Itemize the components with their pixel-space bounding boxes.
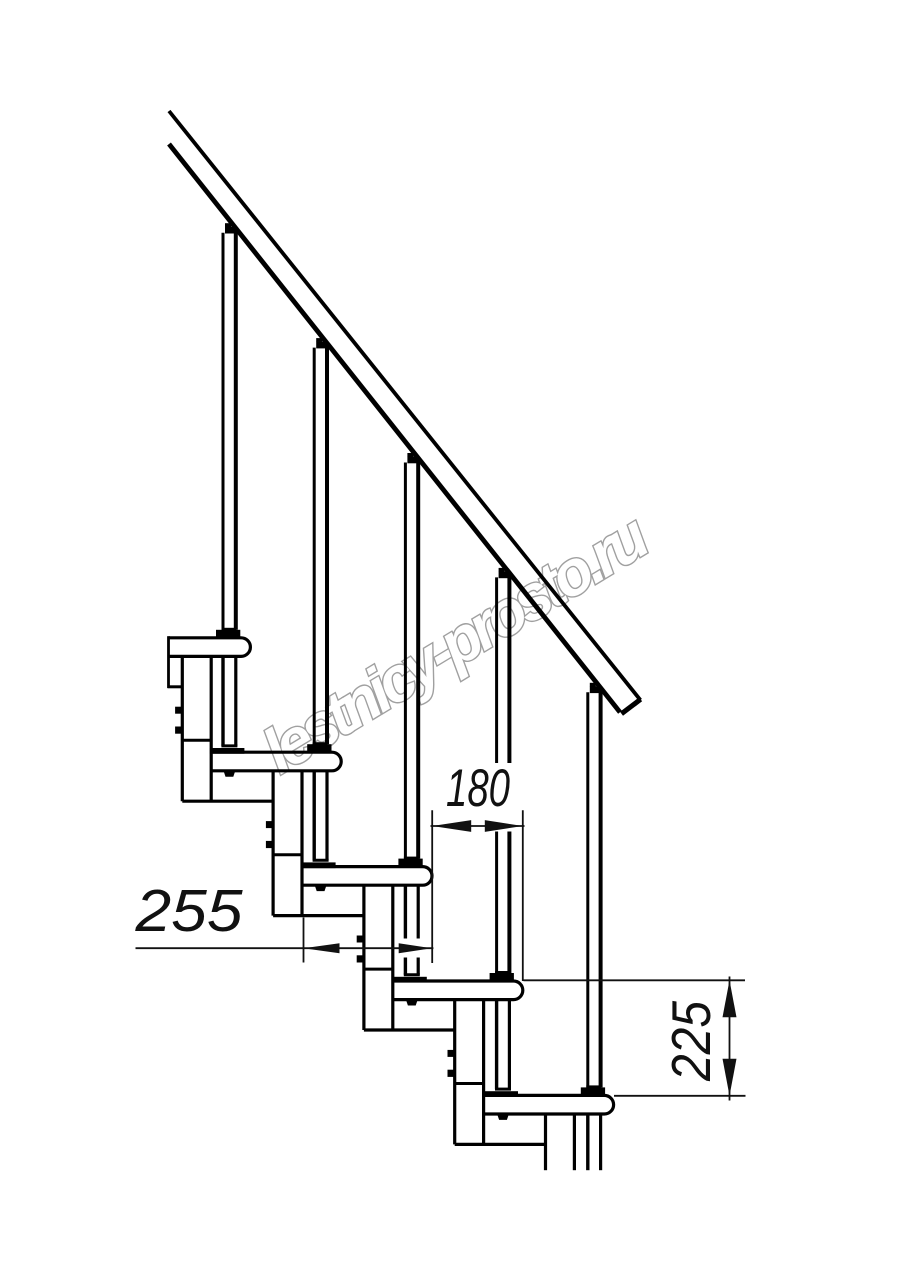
svg-text:180: 180 [446,759,510,818]
svg-text:255: 255 [134,878,242,944]
svg-text:225: 225 [660,1001,722,1082]
